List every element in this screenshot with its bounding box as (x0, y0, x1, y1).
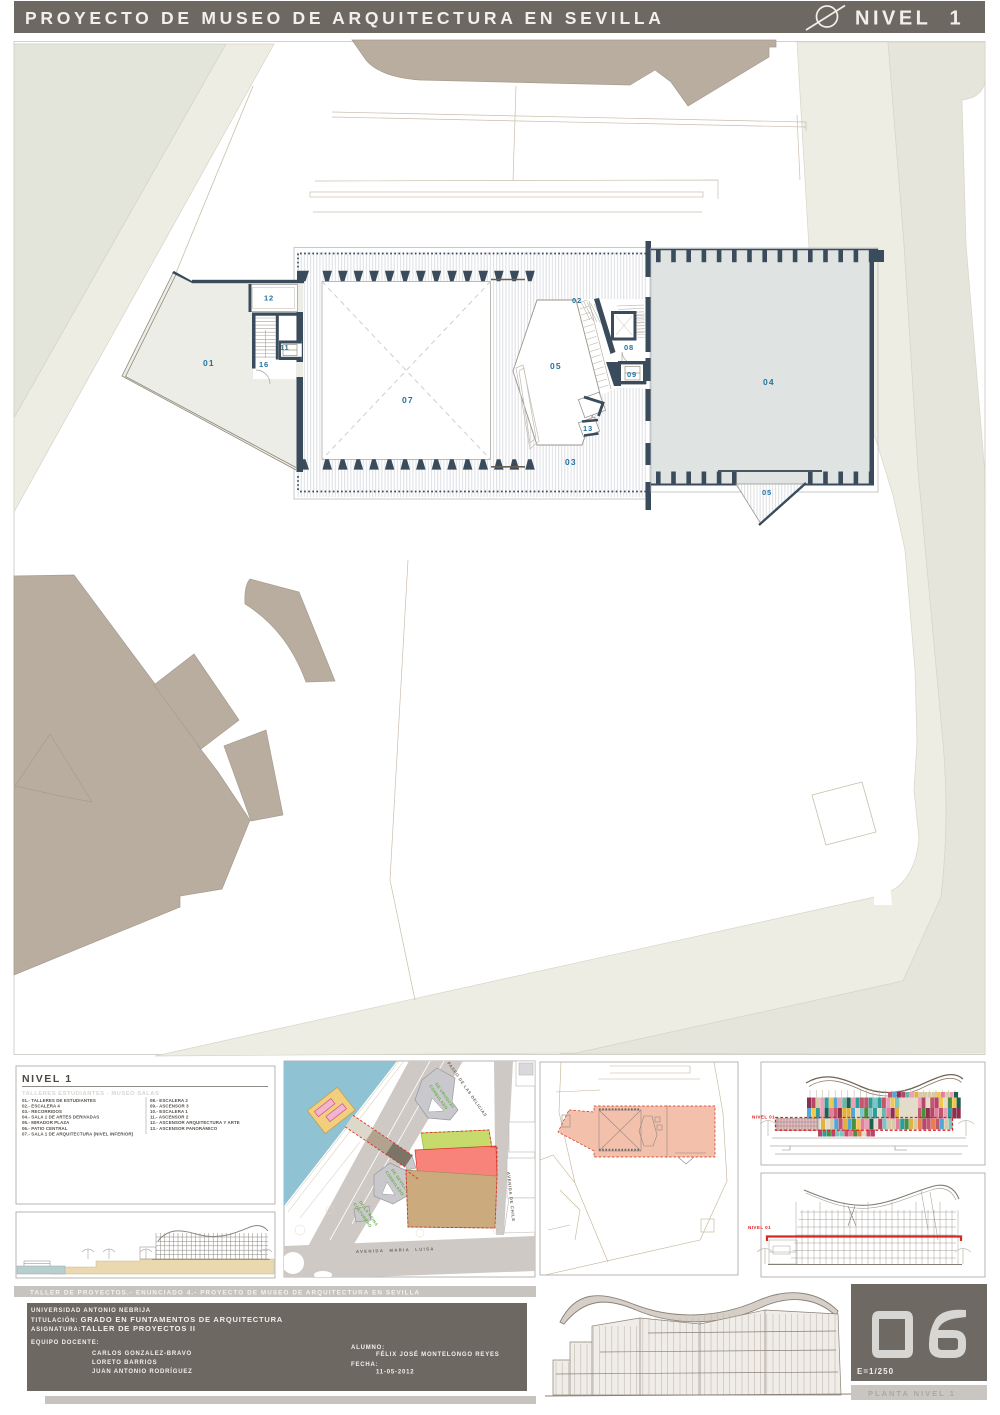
svg-text:NIVEL 1: NIVEL 1 (22, 1073, 73, 1085)
svg-text:EQUIPO DOCENTE:: EQUIPO DOCENTE: (31, 1340, 99, 1346)
svg-text:11: 11 (280, 343, 290, 352)
svg-text:02: 02 (572, 296, 582, 305)
svg-text:07: 07 (402, 395, 414, 405)
svg-text:ALUMNO:: ALUMNO: (351, 1345, 385, 1351)
svg-text:04.- SALA 1 DE ARTES DERIVADAS: 04.- SALA 1 DE ARTES DERIVADAS (22, 1115, 99, 1120)
svg-text:09.- ASCENSOR 3: 09.- ASCENSOR 3 (150, 1104, 189, 1109)
svg-text:UNIVERSIDAD ANTONIO NEBRIJA: UNIVERSIDAD ANTONIO NEBRIJA (31, 1308, 151, 1314)
svg-text:16: 16 (259, 360, 269, 369)
svg-text:13.- ASCENSOR PANORÁMICO: 13.- ASCENSOR PANORÁMICO (150, 1126, 218, 1131)
svg-text:LORETO BARRIOS: LORETO BARRIOS (92, 1360, 157, 1366)
svg-text:05: 05 (550, 361, 562, 371)
svg-text:NIVEL 01: NIVEL 01 (752, 1115, 775, 1120)
svg-text:11-05-2012: 11-05-2012 (376, 1370, 414, 1376)
svg-text:PLANTA NIVEL 1: PLANTA NIVEL 1 (868, 1389, 956, 1398)
svg-text:CARLOS GONZALEZ-BRAVO: CARLOS GONZALEZ-BRAVO (92, 1351, 192, 1357)
svg-text:12: 12 (264, 294, 274, 303)
svg-text:FECHA:: FECHA: (351, 1362, 378, 1368)
svg-text:08: 08 (624, 343, 634, 352)
svg-text:13: 13 (583, 424, 593, 433)
svg-text:08.- ESCALERA 2: 08.- ESCALERA 2 (150, 1098, 188, 1103)
svg-text:01.- TALLERES DE ESTUDIANTES: 01.- TALLERES DE ESTUDIANTES (22, 1098, 96, 1103)
svg-text:03: 03 (565, 457, 577, 467)
svg-text:02.- ESCALERA 4: 02.- ESCALERA 4 (22, 1104, 60, 1109)
svg-text:FÉLIX JOSÉ MONTELONGO REYES: FÉLIX JOSÉ MONTELONGO REYES (376, 1350, 500, 1358)
svg-text:NIVEL 01: NIVEL 01 (748, 1225, 771, 1230)
svg-text:04: 04 (763, 377, 775, 387)
svg-text:09: 09 (627, 370, 637, 379)
svg-text:11.- ASCENSOR 2: 11.- ASCENSOR 2 (150, 1115, 189, 1120)
svg-text:10.- ESCALERA 1: 10.- ESCALERA 1 (150, 1109, 188, 1114)
svg-text:12.- ASCENSOR ARQUITECTURA Y A: 12.- ASCENSOR ARQUITECTURA Y ARTE (150, 1120, 240, 1125)
svg-text:07.- SALA 1 DE ARQUITECTURA (N: 07.- SALA 1 DE ARQUITECTURA (NIVEL INFER… (22, 1131, 134, 1136)
svg-text:NIVEL 1: NIVEL 1 (855, 8, 964, 30)
svg-text:E=1/250: E=1/250 (857, 1367, 894, 1376)
svg-text:05.- MIRADOR PLAZA: 05.- MIRADOR PLAZA (22, 1120, 70, 1125)
svg-text:JUAN ANTONIO RODRÍGUEZ: JUAN ANTONIO RODRÍGUEZ (92, 1367, 193, 1375)
svg-text:06.- PATIO CENTRAL: 06.- PATIO CENTRAL (22, 1126, 68, 1131)
svg-text:01: 01 (203, 358, 215, 368)
svg-text:TALLERES ESTUDIANTES - MUSEO S: TALLERES ESTUDIANTES - MUSEO SALAS (22, 1091, 159, 1097)
svg-text:03.- RECORRIDOS: 03.- RECORRIDOS (22, 1109, 62, 1114)
svg-text:05: 05 (762, 488, 772, 497)
svg-text:TALLER DE PROYECTOS.- ENUNCIAD: TALLER DE PROYECTOS.- ENUNCIADO 4.- PROY… (30, 1289, 420, 1296)
svg-text:PROYECTO DE MUSEO DE ARQUITECT: PROYECTO DE MUSEO DE ARQUITECTURA EN SEV… (25, 8, 665, 28)
